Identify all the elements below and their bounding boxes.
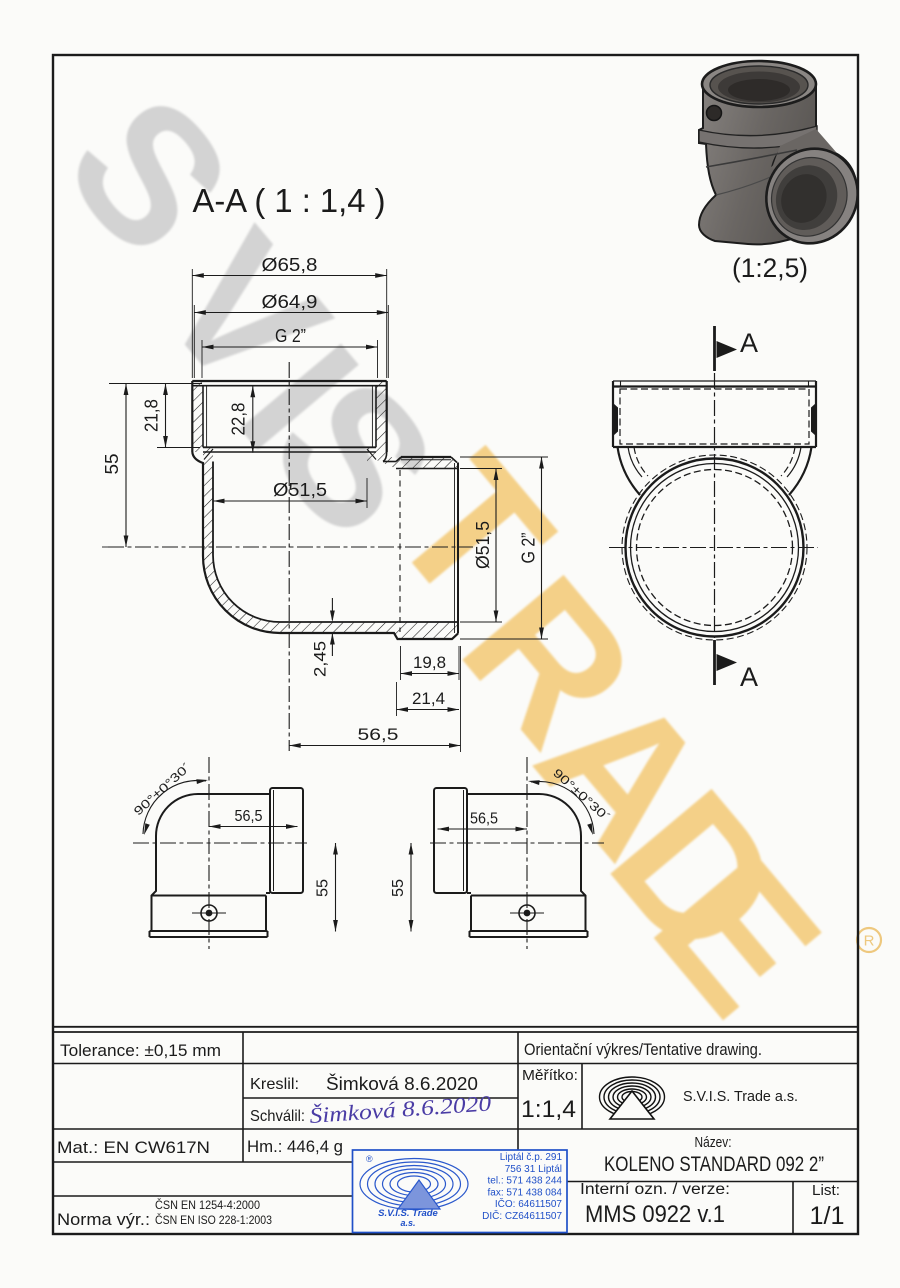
svg-text:Interní ozn. / verze:: Interní ozn. / verze:: [580, 1181, 730, 1198]
svg-text:KOLENO STANDARD 092 2”: KOLENO STANDARD 092 2”: [604, 1153, 824, 1176]
svg-text:Ø51,5: Ø51,5: [473, 521, 493, 569]
svg-text:ČSN EN 1254-4:2000: ČSN EN 1254-4:2000: [155, 1197, 260, 1212]
svg-text:A: A: [740, 328, 758, 358]
svg-text:21,4: 21,4: [412, 689, 445, 708]
svg-text:IČO: 64611507: IČO: 64611507: [495, 1197, 563, 1210]
svg-text:A: A: [740, 662, 758, 692]
svg-text:List:: List:: [812, 1182, 840, 1199]
svg-text:tel.: 571 438 244: tel.: 571 438 244: [487, 1176, 562, 1187]
svg-text:S.V.I.S. Trade a.s.: S.V.I.S. Trade a.s.: [683, 1088, 798, 1105]
svg-text:55: 55: [390, 879, 407, 897]
svg-text:Tolerance: ±0,15 mm: Tolerance: ±0,15 mm: [60, 1041, 221, 1060]
svg-text:G 2”: G 2”: [519, 533, 539, 564]
svg-text:22,8: 22,8: [229, 403, 249, 436]
svg-text:DIČ: CZ64611507: DIČ: CZ64611507: [482, 1209, 562, 1222]
svg-text:21,8: 21,8: [142, 399, 162, 432]
svg-text:1/1: 1/1: [810, 1202, 845, 1230]
svg-text:56,5: 56,5: [235, 808, 263, 825]
svg-text:G 2”: G 2”: [275, 326, 306, 346]
svg-text:Liptál č.p. 291: Liptál č.p. 291: [500, 1152, 563, 1163]
svg-text:55: 55: [102, 454, 122, 475]
svg-text:Šimková 8.6.2020: Šimková 8.6.2020: [326, 1073, 478, 1094]
svg-text:R: R: [864, 933, 875, 950]
svg-text:MMS 0922 v.1: MMS 0922 v.1: [585, 1201, 725, 1228]
svg-text:Ø65,8: Ø65,8: [262, 255, 318, 275]
svg-text:Orientační výkres/Tentative dr: Orientační výkres/Tentative drawing.: [524, 1041, 762, 1059]
svg-text:Kreslil:: Kreslil:: [250, 1076, 299, 1093]
svg-text:®: ®: [366, 1154, 373, 1164]
svg-text:Norma výr.:: Norma výr.:: [57, 1210, 150, 1229]
svg-text:fax: 571 438 084: fax: 571 438 084: [487, 1187, 562, 1198]
svg-text:ČSN EN ISO 228-1:2003: ČSN EN ISO 228-1:2003: [155, 1212, 272, 1227]
svg-text:56,5: 56,5: [470, 811, 498, 828]
svg-text:2,45: 2,45: [311, 641, 330, 677]
svg-text:a.s.: a.s.: [400, 1218, 415, 1228]
svg-text:A-A ( 1 : 1,4 ): A-A ( 1 : 1,4 ): [193, 182, 386, 219]
svg-text:Schválil:: Schválil:: [250, 1108, 305, 1125]
svg-text:Měřítko:: Měřítko:: [522, 1067, 578, 1084]
svg-text:Ø51,5: Ø51,5: [273, 480, 327, 500]
svg-text:Ø64,9: Ø64,9: [262, 292, 318, 312]
svg-text:19,8: 19,8: [413, 653, 446, 672]
svg-text:Název:: Název:: [695, 1134, 732, 1151]
svg-text:55: 55: [315, 879, 332, 897]
svg-text:(1:2,5): (1:2,5): [732, 253, 808, 283]
svg-text:Mat.: EN CW617N: Mat.: EN CW617N: [57, 1138, 210, 1157]
svg-text:756 31 Liptál: 756 31 Liptál: [505, 1164, 562, 1175]
svg-text:1:1,4: 1:1,4: [521, 1096, 576, 1123]
svg-text:Hm.: 446,4 g: Hm.: 446,4 g: [247, 1137, 343, 1156]
svg-text:56,5: 56,5: [358, 725, 399, 744]
